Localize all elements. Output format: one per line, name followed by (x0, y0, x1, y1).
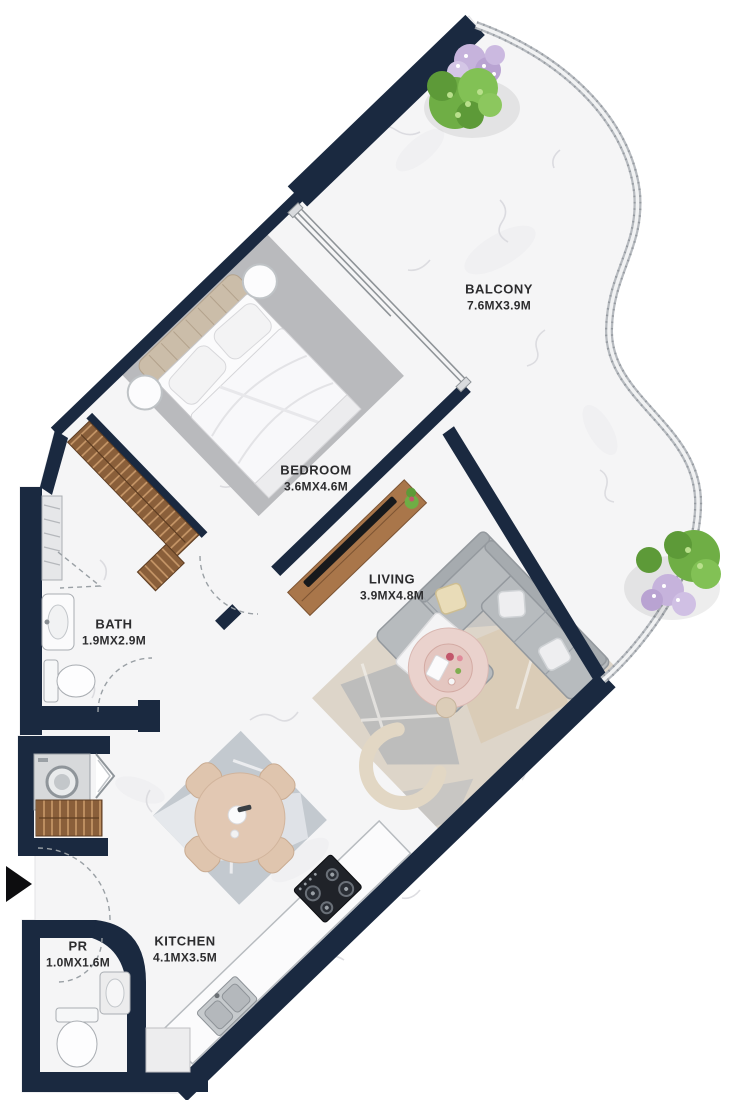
kitchen-counter-corner (146, 1028, 190, 1072)
wall-bath-stub (138, 700, 160, 732)
room-dims: 1.0MX1.6M (46, 956, 110, 970)
room-dims: 3.9MX4.8M (360, 589, 424, 603)
room-dims: 1.9MX2.9M (82, 634, 146, 648)
entrance-arrow (6, 866, 32, 902)
wall-bath-south (20, 706, 140, 730)
room-label-bath: BATH 1.9MX2.9M (82, 617, 146, 648)
room-name: LIVING (360, 572, 424, 587)
room-dims: 4.1MX3.5M (153, 951, 217, 965)
room-name: KITCHEN (153, 934, 217, 949)
room-name: BATH (82, 617, 146, 632)
wall-closet-south (18, 838, 108, 856)
wall-bath-west (20, 487, 42, 735)
room-label-pr: PR 1.0MX1.6M (46, 939, 110, 970)
room-dims: 3.6MX4.6M (280, 480, 351, 494)
room-name: BALCONY (465, 282, 533, 297)
room-dims: 7.6MX3.9M (465, 299, 533, 313)
pr-sink (100, 972, 130, 1014)
wall-closet-west (18, 736, 34, 852)
room-label-bedroom: BEDROOM 3.6MX4.6M (280, 463, 351, 494)
room-name: PR (46, 939, 110, 954)
room-label-living: LIVING 3.9MX4.8M (360, 572, 424, 603)
room-label-balcony: BALCONY 7.6MX3.9M (465, 282, 533, 313)
floor-plan-page: BALCONY 7.6MX3.9M BEDROOM 3.6MX4.6M LIVI… (0, 0, 749, 1100)
bath-sink (42, 594, 74, 650)
wall-south (22, 1072, 208, 1092)
pr-toilet (56, 1008, 98, 1067)
room-label-kitchen: KITCHEN 4.1MX3.5M (153, 934, 217, 965)
wall-pr-west (22, 920, 40, 1092)
floor-plan-svg (0, 0, 749, 1100)
sofa-pillow (498, 590, 526, 618)
room-name: BEDROOM (280, 463, 351, 478)
